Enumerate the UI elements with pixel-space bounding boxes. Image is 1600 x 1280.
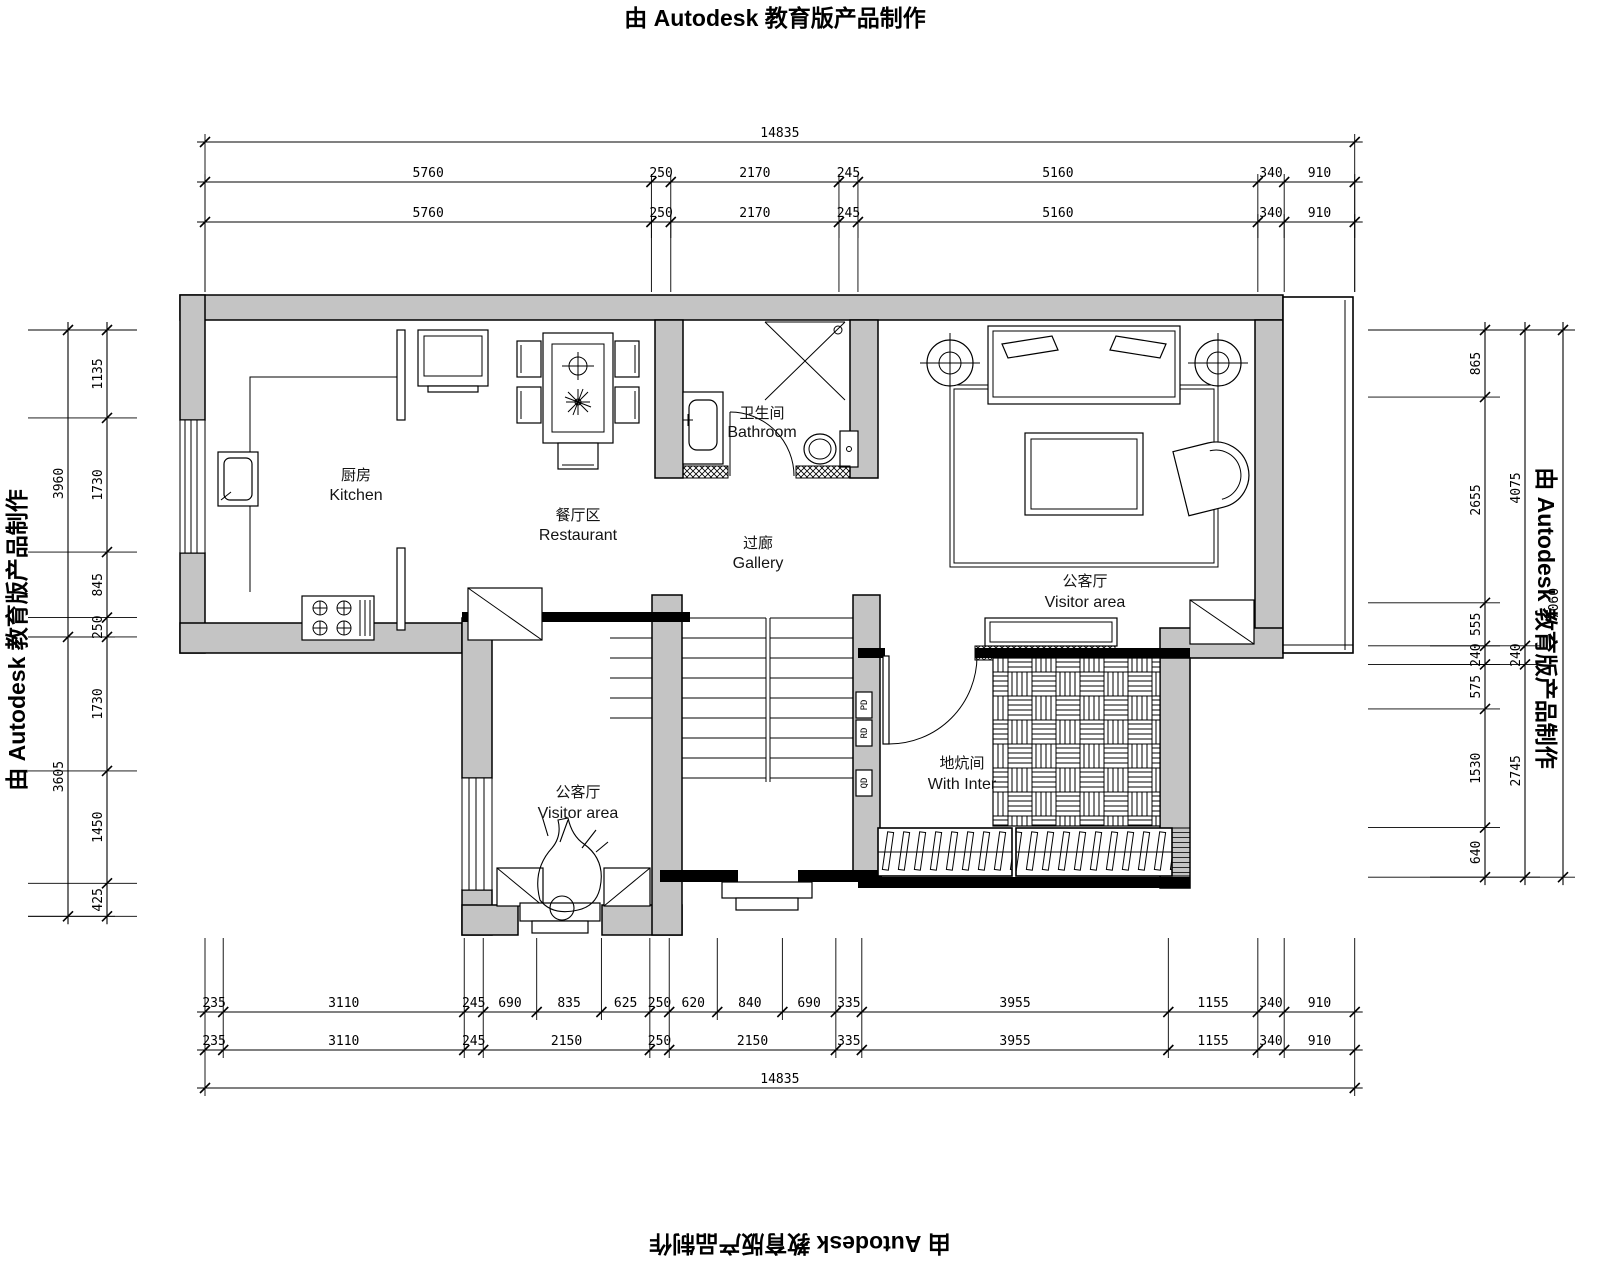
dim-label: 14835 bbox=[760, 1072, 799, 1087]
dim-label: 555 bbox=[1469, 613, 1484, 636]
dim-label: 2150 bbox=[551, 1034, 582, 1049]
dim-label: 335 bbox=[837, 996, 860, 1011]
dining-table bbox=[543, 333, 613, 443]
bathroom-fixtures bbox=[683, 322, 858, 478]
dim-label: 910 bbox=[1308, 996, 1331, 1011]
label-visitor-lower-en: Visitor area bbox=[538, 805, 619, 822]
side-table-right bbox=[1188, 333, 1248, 393]
kitchen-fixtures bbox=[218, 330, 488, 640]
dim-label: 625 bbox=[614, 996, 637, 1011]
label-restaurant-en: Restaurant bbox=[539, 527, 618, 544]
label-kitchen-en: Kitchen bbox=[329, 487, 382, 504]
dim-label: 250 bbox=[648, 1034, 671, 1049]
dim-label: 235 bbox=[202, 996, 225, 1011]
shower bbox=[765, 322, 845, 400]
dim-label: 3960 bbox=[52, 468, 67, 499]
entry-step bbox=[532, 921, 588, 933]
dim-label: 865 bbox=[1469, 352, 1484, 375]
window-lowerroom bbox=[462, 778, 492, 890]
rug bbox=[1025, 433, 1143, 515]
dim-label: 640 bbox=[1469, 841, 1484, 864]
label-kitchen-zh: 厨房 bbox=[341, 467, 371, 484]
bathroom-basin bbox=[689, 400, 717, 450]
dim-label: 3605 bbox=[52, 761, 67, 792]
dim-label: 250 bbox=[649, 166, 672, 181]
threshold-hatch bbox=[796, 466, 850, 478]
stove bbox=[302, 596, 374, 640]
dim-label: 240 bbox=[1509, 643, 1524, 666]
dim-label: 3110 bbox=[328, 1034, 359, 1049]
wall-lowerroom-bottom-a bbox=[462, 905, 518, 935]
label-visitor-right-en: Visitor area bbox=[1045, 594, 1126, 611]
dim-label: 14835 bbox=[760, 126, 799, 141]
heated-door-arc bbox=[889, 656, 977, 744]
dim-label: 910 bbox=[1308, 1034, 1331, 1049]
dim-label: 1730 bbox=[91, 469, 106, 500]
dim-label: 3955 bbox=[999, 1034, 1030, 1049]
label-visitor-lower-zh: 公客厅 bbox=[555, 784, 600, 801]
dim-label: 3955 bbox=[999, 996, 1030, 1011]
dim-label: 5760 bbox=[413, 206, 444, 221]
threshold-hatch bbox=[683, 466, 728, 478]
dim-label: 2745 bbox=[1509, 755, 1524, 786]
dim-label: 250 bbox=[648, 996, 671, 1011]
dim-label: 620 bbox=[682, 996, 705, 1011]
kitchen-cabinet-tv bbox=[418, 330, 488, 386]
side-table-left bbox=[920, 333, 980, 393]
dim-label: 340 bbox=[1259, 996, 1282, 1011]
wall-tags: PD RD QD bbox=[856, 692, 872, 796]
dim-label: 5760 bbox=[413, 166, 444, 181]
dim-label: 250 bbox=[649, 206, 672, 221]
balcony bbox=[1283, 297, 1353, 653]
label-heated-zh: 地炕间 bbox=[939, 755, 984, 772]
kitchen-cabinet-tv-base bbox=[428, 386, 478, 392]
label-gallery-en: Gallery bbox=[733, 555, 784, 572]
dim-label: 2170 bbox=[739, 206, 770, 221]
tag-rd: RD bbox=[860, 728, 870, 739]
parquet-floor bbox=[993, 658, 1160, 826]
dim-label: 690 bbox=[797, 996, 820, 1011]
label-restaurant-zh: 餐厅区 bbox=[555, 507, 600, 524]
heated-door-leaf bbox=[883, 656, 889, 744]
wall-heated-bottom bbox=[858, 877, 1190, 888]
dim-label: 835 bbox=[557, 996, 580, 1011]
kitchen-counter bbox=[250, 377, 397, 592]
label-bathroom-zh: 卫生间 bbox=[739, 405, 784, 422]
dim-label: 5160 bbox=[1042, 206, 1073, 221]
dim-label: 245 bbox=[837, 166, 860, 181]
dim-label: 340 bbox=[1259, 1034, 1282, 1049]
dim-label: 2170 bbox=[739, 166, 770, 181]
wardrobe-end-hatch bbox=[1172, 828, 1190, 876]
dim-label: 575 bbox=[1469, 675, 1484, 698]
wall-left-upper bbox=[180, 295, 205, 420]
label-gallery-zh: 过廊 bbox=[743, 535, 773, 552]
dim-label: 235 bbox=[202, 1034, 225, 1049]
toilet-tank bbox=[840, 431, 858, 467]
dim-label: 840 bbox=[738, 996, 761, 1011]
wall-bathroom-left bbox=[655, 320, 683, 478]
wall-heated-top-a bbox=[858, 648, 885, 658]
entry-step bbox=[722, 882, 812, 898]
floor-plan-canvas: PD RD QD 厨房 Kitchen 餐厅区 Restaurant 卫生间 B… bbox=[0, 0, 1600, 1280]
dim-label: 5160 bbox=[1042, 166, 1073, 181]
wall-living-right bbox=[1255, 320, 1283, 630]
wall-stair-bottom-a bbox=[660, 870, 738, 882]
dim-label: 1530 bbox=[1469, 753, 1484, 784]
dim-label: 690 bbox=[498, 996, 521, 1011]
label-heated-en: With Inter bbox=[928, 776, 997, 793]
dim-label: 340 bbox=[1259, 206, 1282, 221]
window-kitchen bbox=[180, 420, 205, 553]
staircase bbox=[610, 618, 853, 910]
partition-lower bbox=[397, 548, 405, 630]
heated-room bbox=[878, 656, 1190, 876]
dim-label: 335 bbox=[837, 1034, 860, 1049]
armchair bbox=[1173, 435, 1256, 516]
partition-upper bbox=[397, 330, 405, 420]
dim-label: 425 bbox=[91, 888, 106, 911]
dim-label: 4075 bbox=[1509, 472, 1524, 503]
label-bathroom-en: Bathroom bbox=[727, 424, 796, 441]
dim-label: 845 bbox=[91, 573, 106, 596]
dim-label: 1450 bbox=[91, 812, 106, 843]
dim-label: 3110 bbox=[328, 996, 359, 1011]
dim-label: 2655 bbox=[1469, 484, 1484, 515]
dim-label: 240 bbox=[1469, 643, 1484, 666]
dim-label: 245 bbox=[837, 206, 860, 221]
dim-label: 910 bbox=[1308, 166, 1331, 181]
dim-label: 1155 bbox=[1197, 996, 1228, 1011]
wall-top bbox=[180, 295, 1283, 320]
tag-qd: QD bbox=[860, 778, 870, 789]
stair-treads bbox=[610, 618, 853, 782]
dim-label: 245 bbox=[462, 1034, 485, 1049]
entry-step bbox=[736, 898, 798, 910]
dim-label: 1135 bbox=[91, 358, 106, 389]
dim-label: 910 bbox=[1308, 206, 1331, 221]
dim-label: 2150 bbox=[737, 1034, 768, 1049]
wall-lowerroom-left-upper bbox=[462, 618, 492, 778]
label-visitor-right-zh: 公客厅 bbox=[1062, 573, 1107, 590]
dim-label: 245 bbox=[462, 996, 485, 1011]
dim-label: 1155 bbox=[1197, 1034, 1228, 1049]
sofa-bed bbox=[988, 326, 1180, 404]
dim-label: 1730 bbox=[91, 688, 106, 719]
dim-label: 250 bbox=[91, 615, 106, 638]
dim-label: 7060 bbox=[1547, 588, 1562, 619]
tag-pd: PD bbox=[860, 700, 870, 711]
dining-set bbox=[517, 333, 639, 469]
dim-label: 340 bbox=[1259, 166, 1282, 181]
wall-stair-left bbox=[652, 595, 682, 935]
